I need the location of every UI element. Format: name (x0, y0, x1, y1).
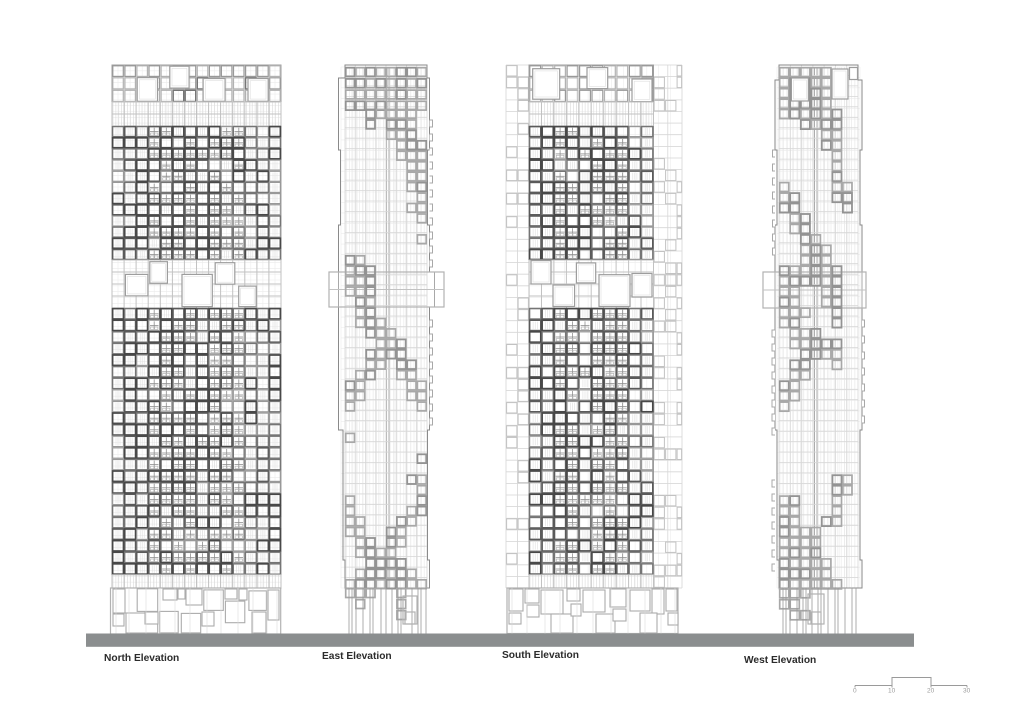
svg-text:20: 20 (927, 688, 935, 695)
svg-text:10: 10 (888, 688, 896, 695)
svg-text:East Elevation: East Elevation (322, 651, 392, 662)
svg-text:West Elevation: West Elevation (744, 655, 816, 666)
svg-text:30: 30 (963, 688, 971, 695)
svg-text:0: 0 (853, 688, 857, 695)
svg-text:South Elevation: South Elevation (502, 650, 579, 661)
svg-text:North Elevation: North Elevation (104, 653, 179, 664)
